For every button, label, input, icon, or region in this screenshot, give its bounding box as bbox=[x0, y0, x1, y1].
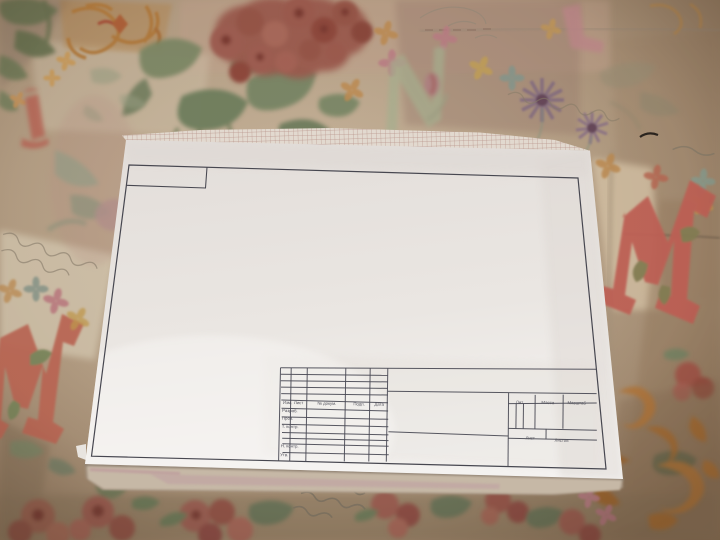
svg-text:Разраб.: Разраб. bbox=[282, 408, 298, 413]
svg-text:№ докум.: № докум. bbox=[317, 401, 336, 406]
svg-text:Утв.: Утв. bbox=[280, 452, 288, 457]
svg-text:Дата: Дата bbox=[374, 402, 384, 407]
svg-text:Лист: Лист bbox=[294, 400, 303, 405]
svg-text:Подп.: Подп. bbox=[353, 401, 365, 406]
svg-text:Лит.: Лит. bbox=[516, 400, 524, 405]
svg-text:Изм.: Изм. bbox=[283, 400, 292, 405]
svg-text:Н. контр.: Н. контр. bbox=[281, 443, 299, 448]
svg-text:Т. контр.: Т. контр. bbox=[282, 424, 299, 429]
svg-text:Листов: Листов bbox=[554, 438, 569, 443]
svg-text:Пров.: Пров. bbox=[282, 416, 293, 421]
svg-text:Лист: Лист bbox=[526, 435, 535, 440]
svg-text:Масса: Масса bbox=[541, 400, 554, 405]
svg-text:Масштаб: Масштаб bbox=[567, 400, 586, 405]
